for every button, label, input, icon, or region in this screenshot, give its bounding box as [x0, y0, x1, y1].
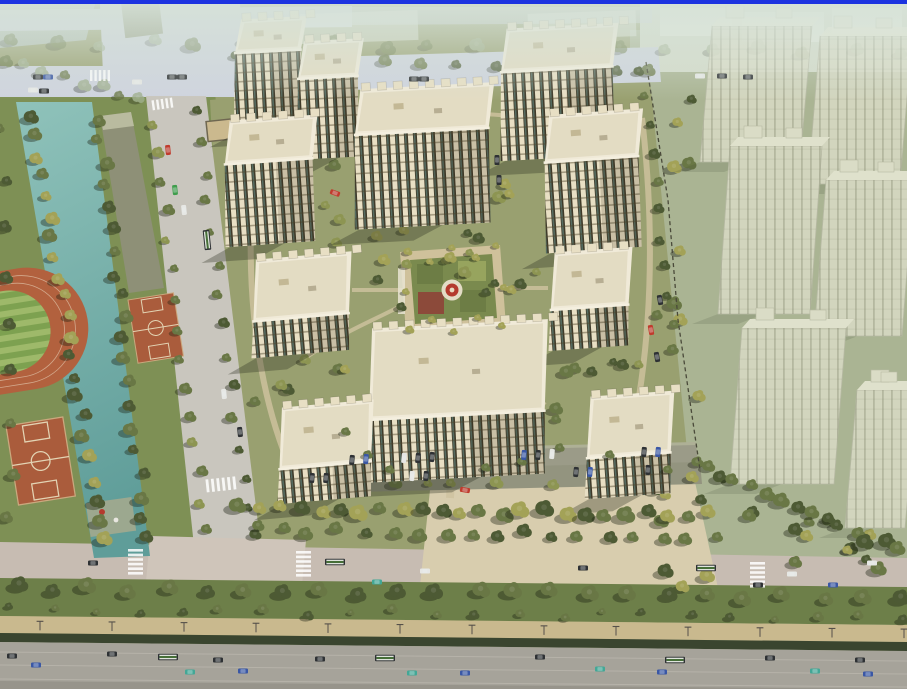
car — [460, 671, 470, 676]
car — [185, 670, 195, 675]
car — [172, 185, 178, 195]
parapet — [437, 318, 446, 326]
facade-shade — [430, 129, 493, 226]
parapet — [550, 108, 560, 117]
basketball-court-south — [6, 417, 75, 505]
car — [753, 583, 763, 588]
ghost-ridges — [718, 146, 822, 314]
parapet — [362, 394, 372, 403]
roof-unit — [599, 135, 607, 141]
crosswalk-bar — [128, 563, 143, 566]
parapet — [336, 246, 346, 255]
parapet — [346, 395, 356, 404]
facade-shade — [274, 159, 319, 244]
car — [31, 663, 41, 668]
ghost-step — [840, 160, 858, 172]
car — [828, 583, 838, 588]
roof-inner — [225, 119, 315, 161]
top-blue-bar — [0, 0, 907, 4]
parapet — [294, 110, 304, 119]
parapet — [639, 386, 649, 395]
roof-unit — [393, 103, 403, 110]
parapet — [603, 242, 613, 251]
roof-unit — [308, 286, 316, 292]
parapet — [623, 388, 633, 397]
crosswalk-bar — [296, 556, 311, 559]
car — [787, 572, 797, 577]
car — [401, 453, 407, 463]
car — [495, 155, 500, 165]
car — [573, 467, 579, 477]
roof-unit — [472, 369, 480, 374]
ghost-step — [744, 126, 762, 138]
ghost-step — [810, 310, 826, 320]
roof-unit — [276, 139, 284, 145]
parapet — [614, 104, 624, 113]
car — [765, 656, 775, 661]
ghost-step — [881, 372, 897, 382]
car — [420, 569, 430, 574]
car — [88, 561, 98, 566]
parapet — [598, 105, 608, 114]
haze-overlay — [0, 0, 907, 100]
car — [855, 658, 865, 663]
parapet — [453, 318, 462, 326]
roof-unit — [278, 279, 288, 286]
roof-unit — [571, 130, 581, 137]
bus — [375, 655, 395, 662]
crosswalk-bar — [128, 554, 143, 557]
car — [810, 669, 820, 674]
crosswalk-bar — [750, 576, 765, 579]
car — [323, 473, 329, 483]
ghost-step — [878, 162, 894, 172]
parapet — [246, 113, 256, 122]
parapet — [230, 114, 240, 123]
ghost-roof — [742, 319, 854, 328]
parapet — [256, 253, 266, 262]
car — [429, 452, 435, 462]
car — [595, 667, 605, 672]
bus — [696, 565, 716, 572]
parapet — [591, 390, 601, 399]
car — [181, 205, 187, 215]
crosswalk-bar — [750, 562, 765, 565]
roof-unit — [303, 427, 313, 434]
car — [587, 467, 593, 477]
roof-unit — [249, 134, 259, 141]
parapet — [582, 106, 592, 115]
south-street-junction — [146, 536, 306, 586]
crosswalk-bar — [296, 560, 311, 563]
ghost-roof — [857, 381, 907, 390]
roof-inner — [586, 395, 674, 455]
crosswalk-bar — [750, 567, 765, 570]
roof-inner — [277, 404, 373, 466]
parapet — [310, 108, 320, 117]
car — [867, 561, 877, 566]
bus — [158, 654, 178, 661]
parapet — [549, 313, 558, 321]
car — [237, 427, 243, 437]
parapet — [314, 398, 324, 407]
car — [415, 453, 421, 463]
car — [213, 658, 223, 663]
car — [349, 455, 355, 465]
facade-shade — [307, 314, 352, 354]
render-canvas: Aerial architectural rendering of a high… — [0, 0, 907, 689]
crosswalk-bar — [128, 558, 143, 561]
roof-inner — [367, 323, 547, 416]
car — [165, 145, 171, 155]
car — [372, 580, 382, 585]
bus — [325, 559, 345, 566]
parapet — [555, 246, 565, 255]
parapet — [352, 244, 362, 253]
roof-inner — [545, 113, 642, 159]
parapet — [485, 316, 494, 324]
roof-unit — [571, 271, 581, 278]
parapet — [272, 251, 282, 260]
car — [7, 654, 17, 659]
crosswalk-bar — [750, 571, 765, 574]
parapet — [571, 244, 581, 253]
car — [363, 454, 369, 464]
car — [409, 471, 415, 481]
aerial-render: Aerial architectural rendering of a high… — [0, 0, 907, 689]
car — [535, 655, 545, 660]
bus — [665, 657, 685, 664]
car — [107, 652, 117, 657]
parapet — [330, 396, 340, 405]
roof-unit — [595, 278, 603, 284]
roof-unit — [609, 416, 619, 423]
ghost-step — [756, 308, 774, 320]
car — [521, 450, 527, 460]
ghost-step — [786, 128, 802, 138]
parapet — [278, 111, 288, 120]
parapet — [671, 384, 681, 393]
crosswalk-bar — [128, 567, 143, 570]
car — [645, 465, 651, 475]
car — [578, 566, 588, 571]
facade-shade — [594, 305, 631, 347]
crosswalk-bar — [296, 574, 311, 577]
crosswalk-bar — [296, 565, 311, 568]
parapet — [373, 322, 382, 330]
roof-unit — [419, 358, 429, 365]
parapet — [630, 103, 640, 112]
roof-inner — [251, 256, 351, 318]
parapet — [304, 249, 314, 258]
parapet — [389, 321, 398, 329]
car — [657, 670, 667, 675]
parapet — [587, 243, 597, 252]
roof-inner — [550, 251, 631, 306]
crosswalk-bar — [296, 551, 311, 554]
parapet — [288, 250, 298, 259]
parapet — [320, 247, 330, 256]
facade-shade — [597, 157, 645, 250]
car — [315, 657, 325, 662]
crosswalk-bar — [128, 572, 143, 575]
parapet — [517, 314, 526, 322]
parapet — [619, 241, 629, 250]
car — [655, 447, 661, 457]
car — [497, 175, 502, 185]
ghost-ridges — [730, 328, 846, 484]
parapet — [282, 401, 292, 410]
roof-unit — [635, 424, 643, 430]
facade-shade — [331, 462, 374, 499]
parapet — [262, 112, 272, 121]
parapet — [655, 385, 665, 394]
parapet — [298, 399, 308, 408]
crosswalk-bar — [128, 549, 143, 552]
car — [238, 669, 248, 674]
car — [221, 389, 227, 399]
car — [863, 672, 873, 677]
car — [535, 450, 541, 460]
car — [549, 449, 555, 459]
car — [641, 447, 647, 457]
parapet — [607, 389, 617, 398]
ghost-roof — [826, 171, 907, 180]
car — [407, 671, 417, 676]
roof-unit — [434, 108, 442, 113]
ghost-ridges — [814, 180, 907, 336]
car — [309, 473, 315, 483]
car — [423, 471, 429, 481]
parapet — [566, 107, 576, 116]
crosswalk-bar — [296, 569, 311, 572]
facade-shade — [469, 411, 548, 477]
parapet — [533, 313, 542, 321]
ghost-roof — [730, 137, 830, 146]
